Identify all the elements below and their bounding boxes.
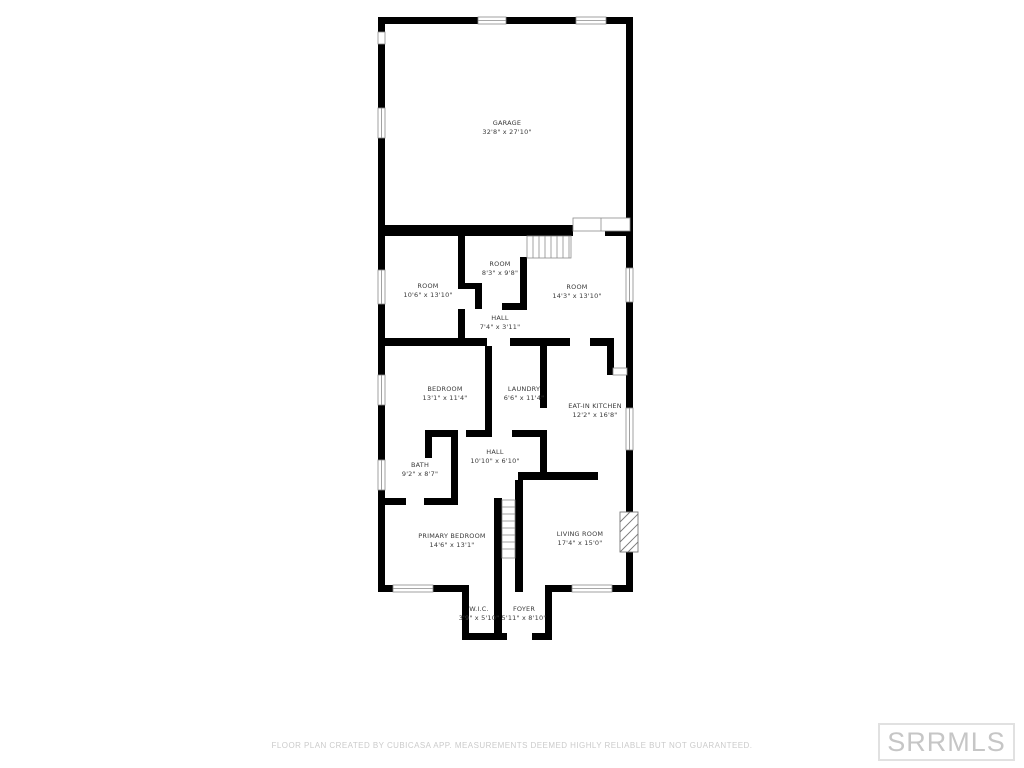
room-name: ROOM [403,282,452,291]
room-dims: 14'6" x 13'1" [418,541,485,550]
room-label-bedroom: BEDROOM 13'1" x 11'4" [423,385,468,403]
room-label-laundry: LAUNDRY 6'6" x 11'4" [504,385,545,403]
room-name: FOYER [502,605,547,614]
fireplace [620,512,638,552]
room-dims: 8'3" x 9'8" [482,269,518,278]
stairs-down [502,500,515,558]
room-name: ROOM [482,260,518,269]
room-dims: 13'1" x 11'4" [423,394,468,403]
room-name: EAT-IN KITCHEN [568,402,622,411]
room-name: LAUNDRY [504,385,545,394]
room-dims: 17'4" x 15'0" [557,539,603,548]
room-name: BATH [402,461,438,470]
stair-landing [573,218,630,231]
room-label-eat-in-kitchen: EAT-IN KITCHEN 12'2" x 16'8" [568,402,622,420]
mls-watermark-text: SRRMLS [887,729,1006,756]
room-name: LIVING ROOM [557,530,603,539]
room-name: BEDROOM [423,385,468,394]
room-name: HALL [480,314,521,323]
room-name: HALL [470,448,519,457]
floor-plan-drawing [0,0,1024,768]
footer-disclaimer: FLOOR PLAN CREATED BY CUBICASA APP. MEAS… [0,741,1024,751]
room-dims: 10'6" x 13'10" [403,291,452,300]
room-label-living-room: LIVING ROOM 17'4" x 15'0" [557,530,603,548]
room-dims: 5'11" x 8'10" [502,614,547,623]
room-name: PRIMARY BEDROOM [418,532,485,541]
room-dims: 12'2" x 16'8" [568,411,622,420]
mls-watermark-box: SRRMLS [878,723,1015,761]
room-dims: 3'9" x 5'10" [459,614,500,623]
room-label-primary-bedroom: PRIMARY BEDROOM 14'6" x 13'1" [418,532,485,550]
room-dims: 6'6" x 11'4" [504,394,545,403]
floor-plan-page: GARAGE 32'8" x 27'10" ROOM 10'6" x 13'10… [0,0,1024,768]
room-dims: 7'4" x 3'11" [480,323,521,332]
room-dims: 9'2" x 8'7" [402,470,438,479]
room-label-room-middle: ROOM 8'3" x 9'8" [482,260,518,278]
room-name: GARAGE [482,119,531,128]
room-label-wic: W.I.C. 3'9" x 5'10" [459,605,500,623]
room-label-room-left: ROOM 10'6" x 13'10" [403,282,452,300]
room-dims: 14'3" x 13'10" [552,292,601,301]
room-dims: 10'10" x 6'10" [470,457,519,466]
room-label-room-right: ROOM 14'3" x 13'10" [552,283,601,301]
room-label-bath: BATH 9'2" x 8'7" [402,461,438,479]
room-label-hall-lower: HALL 10'10" x 6'10" [470,448,519,466]
stairs-up-to-garage [527,236,571,258]
room-label-garage: GARAGE 32'8" x 27'10" [482,119,531,137]
room-label-hall-upper: HALL 7'4" x 3'11" [480,314,521,332]
room-name: W.I.C. [459,605,500,614]
room-dims: 32'8" x 27'10" [482,128,531,137]
room-label-foyer: FOYER 5'11" x 8'10" [502,605,547,623]
room-name: ROOM [552,283,601,292]
